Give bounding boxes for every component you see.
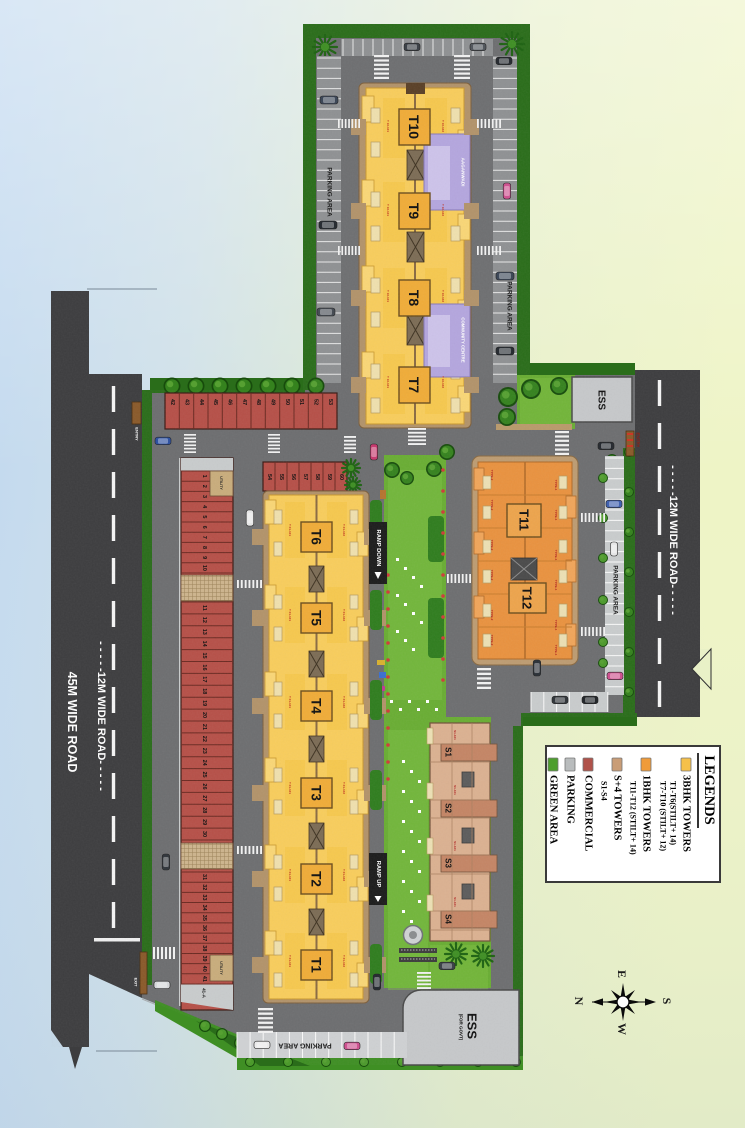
- svg-text:T11-T12 (STILT+ 14): T11-T12 (STILT+ 14): [629, 781, 638, 855]
- svg-text:GREEN AREA: GREEN AREA: [548, 775, 559, 845]
- svg-text:T1-T6(STILT+ 14): T1-T6(STILT+ 14): [669, 781, 678, 845]
- svg-text:W: W: [615, 1023, 629, 1035]
- svg-text:S1-S4: S1-S4: [600, 781, 609, 801]
- svg-text:3BHK TOWERS: 3BHK TOWERS: [681, 775, 692, 852]
- svg-text:LEGENDS: LEGENDS: [701, 755, 717, 824]
- svg-text:1BHK TOWERS: 1BHK TOWERS: [641, 775, 652, 852]
- svg-text:PARKING: PARKING: [565, 775, 576, 824]
- svg-text:T7-T10 (STILT+ 12): T7-T10 (STILT+ 12): [659, 781, 668, 851]
- svg-text:N: N: [572, 997, 586, 1006]
- svg-text:S+4 TOWERS: S+4 TOWERS: [612, 775, 623, 841]
- svg-text:E: E: [615, 970, 629, 978]
- svg-text:COMMERCIAL: COMMERCIAL: [583, 775, 594, 851]
- svg-text:S: S: [660, 998, 674, 1005]
